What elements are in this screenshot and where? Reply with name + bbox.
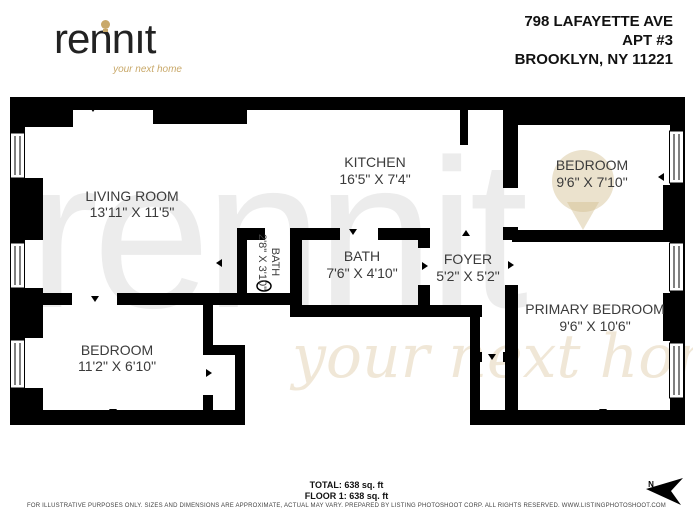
total-area: TOTAL: 638 sq. ft bbox=[0, 480, 693, 491]
kitchen-label: KITCHEN bbox=[344, 154, 405, 170]
bath-label: BATH bbox=[344, 248, 380, 264]
bedroom-bottom-label: BEDROOM bbox=[81, 342, 153, 358]
bath-dims: 7'6" X 4'10" bbox=[326, 265, 397, 281]
bedroom-top-dims: 9'6" X 7'10" bbox=[556, 174, 627, 190]
floorplan-page: rennit your next home rennıt your next h… bbox=[0, 0, 693, 520]
foyer-dims: 5'2" X 5'2" bbox=[436, 268, 500, 284]
area-summary: TOTAL: 638 sq. ft FLOOR 1: 638 sq. ft bbox=[0, 480, 693, 502]
bedroom-top-label: BEDROOM bbox=[556, 157, 628, 173]
primary-bedroom-label: PRIMARY BEDROOM bbox=[525, 301, 665, 317]
bedroom-bottom-dims: 11'2" X 6'10" bbox=[78, 358, 156, 374]
foyer-label: FOYER bbox=[444, 251, 492, 267]
disclaimer-text: FOR ILLUSTRATIVE PURPOSES ONLY. SIZES AN… bbox=[0, 503, 693, 509]
floor1-area: FLOOR 1: 638 sq. ft bbox=[0, 491, 693, 502]
bath-small-dims: 2'8" X 3'10" bbox=[256, 234, 268, 290]
kitchen-dims: 16'5" X 7'4" bbox=[339, 171, 410, 187]
bath-small-label: BATH bbox=[269, 248, 281, 277]
primary-bedroom-dims: 9'6" X 10'6" bbox=[559, 318, 630, 334]
living-room-dims: 13'11" X 11'5" bbox=[90, 204, 175, 220]
floorplan-drawing: LIVING ROOM 13'11" X 11'5" KITCHEN 16'5"… bbox=[0, 0, 693, 520]
room-labels: LIVING ROOM 13'11" X 11'5" KITCHEN 16'5"… bbox=[78, 154, 665, 374]
living-room-label: LIVING ROOM bbox=[85, 188, 178, 204]
